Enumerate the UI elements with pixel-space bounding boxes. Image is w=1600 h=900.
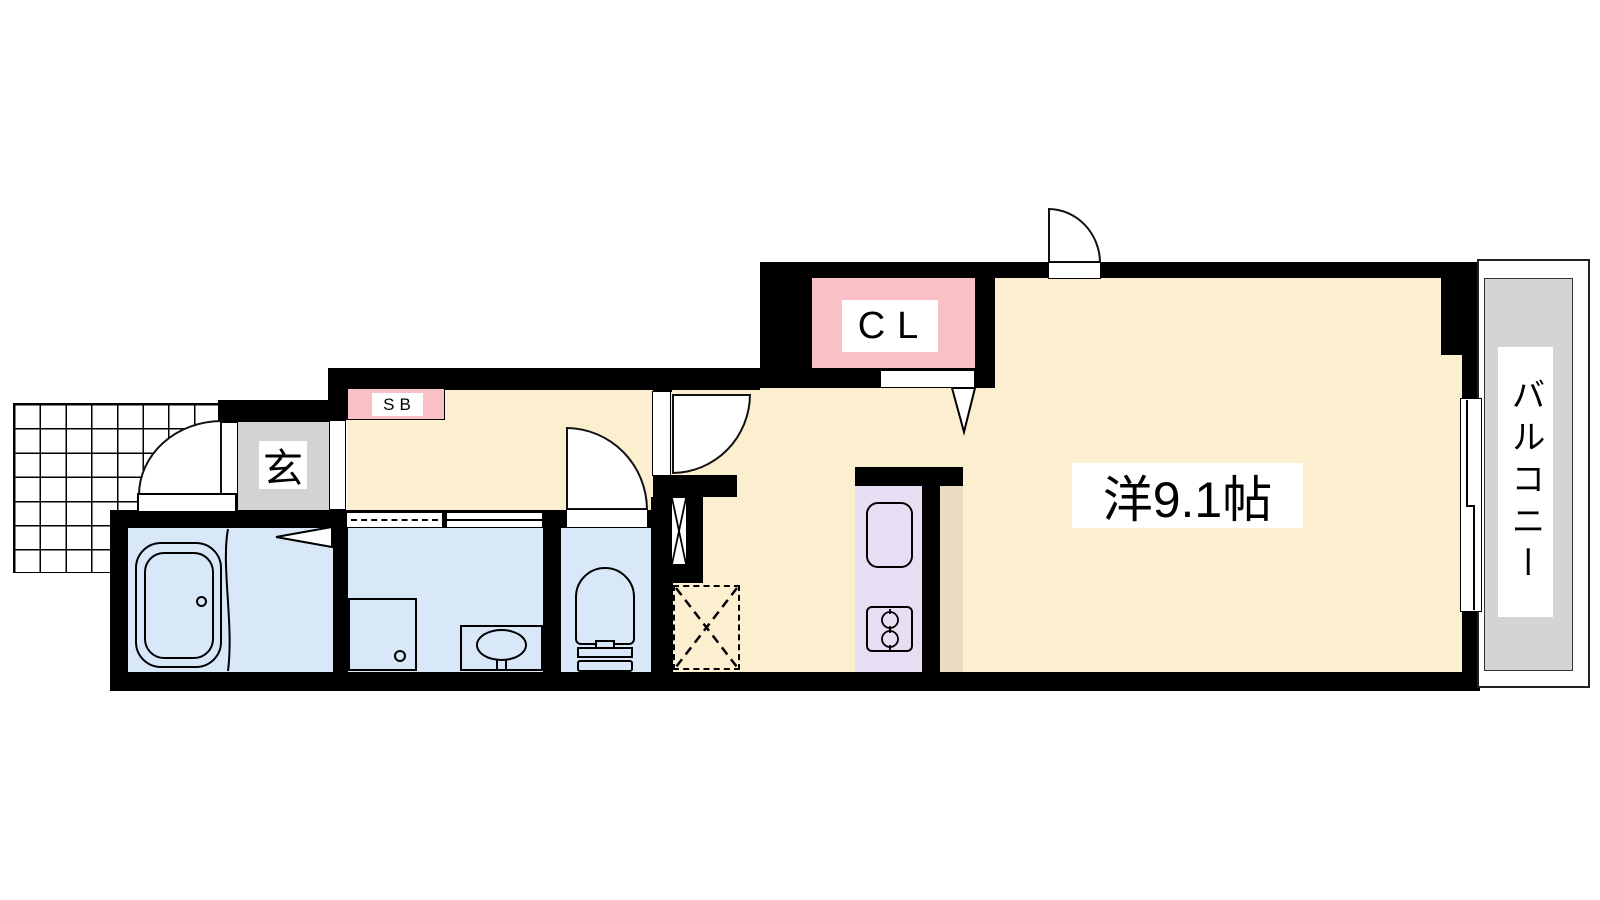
bathroom-folding-door-icon — [276, 527, 332, 547]
refrigerator-x-icon — [676, 588, 737, 667]
closet-door-swing-icon — [952, 388, 975, 432]
floor-plan: SB 玄 CL 洋9.1帖 バルコニー — [0, 0, 1600, 900]
stove-burners-icon — [882, 609, 898, 650]
pipe-space-x-icon — [672, 498, 686, 564]
bath-partition-curve — [226, 529, 230, 671]
plan-stroke-overlay — [0, 0, 1600, 900]
